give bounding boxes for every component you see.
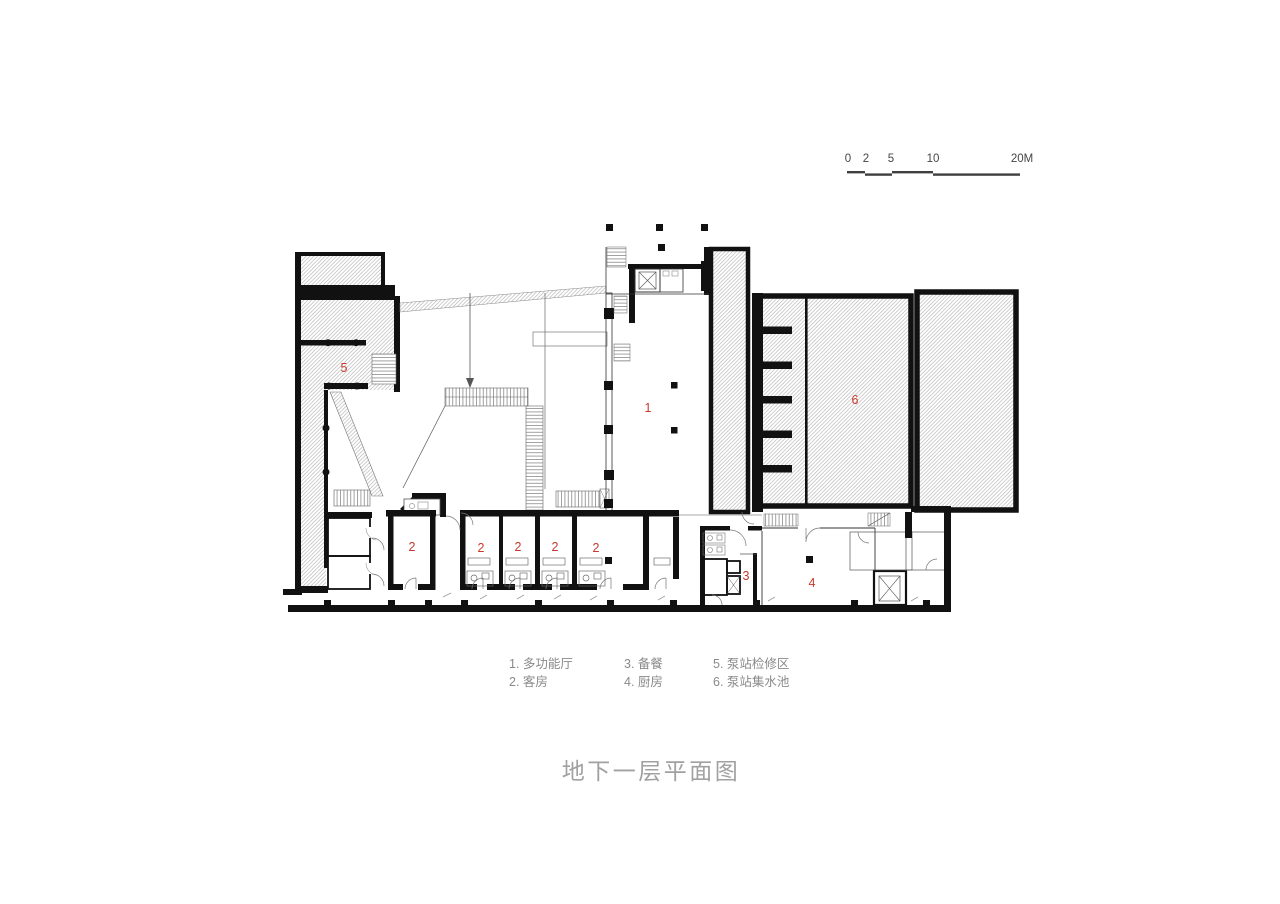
column xyxy=(671,427,678,434)
shaft-strip xyxy=(701,249,748,512)
legend-column-2: 3. 备餐 4. 厨房 xyxy=(624,655,663,691)
column xyxy=(671,382,678,389)
room-marker-5: 5 xyxy=(341,361,348,375)
legend-item-1: 1. 多功能厅 xyxy=(509,655,573,673)
outer-walls xyxy=(288,512,951,612)
scale-label-10: 10 xyxy=(927,153,940,165)
scale-label-20m: 20M xyxy=(1011,153,1033,165)
stairs xyxy=(372,354,396,384)
legend-column-1: 1. 多功能厅 2. 客房 xyxy=(509,655,573,691)
hall-divider-wall xyxy=(604,247,635,515)
column xyxy=(606,224,613,231)
room-marker-4: 4 xyxy=(809,576,816,590)
direction-arrow xyxy=(466,293,474,388)
column xyxy=(806,556,813,563)
legend-item-2: 2. 客房 xyxy=(509,673,573,691)
room-marker-6: 6 xyxy=(852,393,859,407)
legend-item-4: 4. 厨房 xyxy=(624,673,663,691)
room-marker-2b: 2 xyxy=(478,541,485,555)
pump-station-pool xyxy=(752,292,1016,512)
stairs xyxy=(556,489,609,508)
lobby xyxy=(400,286,609,517)
legend-item-3: 3. 备餐 xyxy=(624,655,663,673)
legend-item-6: 6. 泵站集水池 xyxy=(713,673,789,691)
elevator-lobby xyxy=(606,224,712,295)
sloped-ramp-strip xyxy=(400,286,606,312)
column xyxy=(701,224,708,231)
room-marker-2c: 2 xyxy=(515,540,522,554)
floor-plan-page: 0 2 5 10 20M 5 1 6 2 2 2 2 2 3 4 1. 多功能厅… xyxy=(0,0,1280,904)
scale-label-5: 5 xyxy=(888,153,894,165)
multifunction-hall xyxy=(671,382,678,434)
grand-stairs xyxy=(445,388,543,510)
legend-column-3: 5. 泵站检修区 6. 泵站集水池 xyxy=(713,655,789,691)
room-marker-1: 1 xyxy=(645,401,652,415)
food-prep-kitchen-zone xyxy=(679,512,875,605)
page-title: 地下一层平面图 xyxy=(562,752,741,786)
room-marker-2a: 2 xyxy=(409,540,416,554)
column xyxy=(605,557,612,564)
elevator-icon xyxy=(635,269,660,292)
scale-bar xyxy=(847,171,1020,176)
column xyxy=(658,244,665,251)
service-rooms-right xyxy=(850,512,947,570)
corridor-door-marks xyxy=(443,593,918,601)
room-marker-2e: 2 xyxy=(593,541,600,555)
legend-item-5: 5. 泵站检修区 xyxy=(713,655,789,673)
column xyxy=(656,224,663,231)
room-marker-3: 3 xyxy=(743,569,750,583)
pump-station-maintenance-area xyxy=(283,254,400,595)
ramp xyxy=(330,392,383,506)
scale-label-0: 0 xyxy=(845,153,851,165)
scale-label-2: 2 xyxy=(863,153,869,165)
room-marker-2d: 2 xyxy=(552,540,559,554)
guest-room-band xyxy=(386,510,947,605)
elevator-icon xyxy=(874,571,906,605)
